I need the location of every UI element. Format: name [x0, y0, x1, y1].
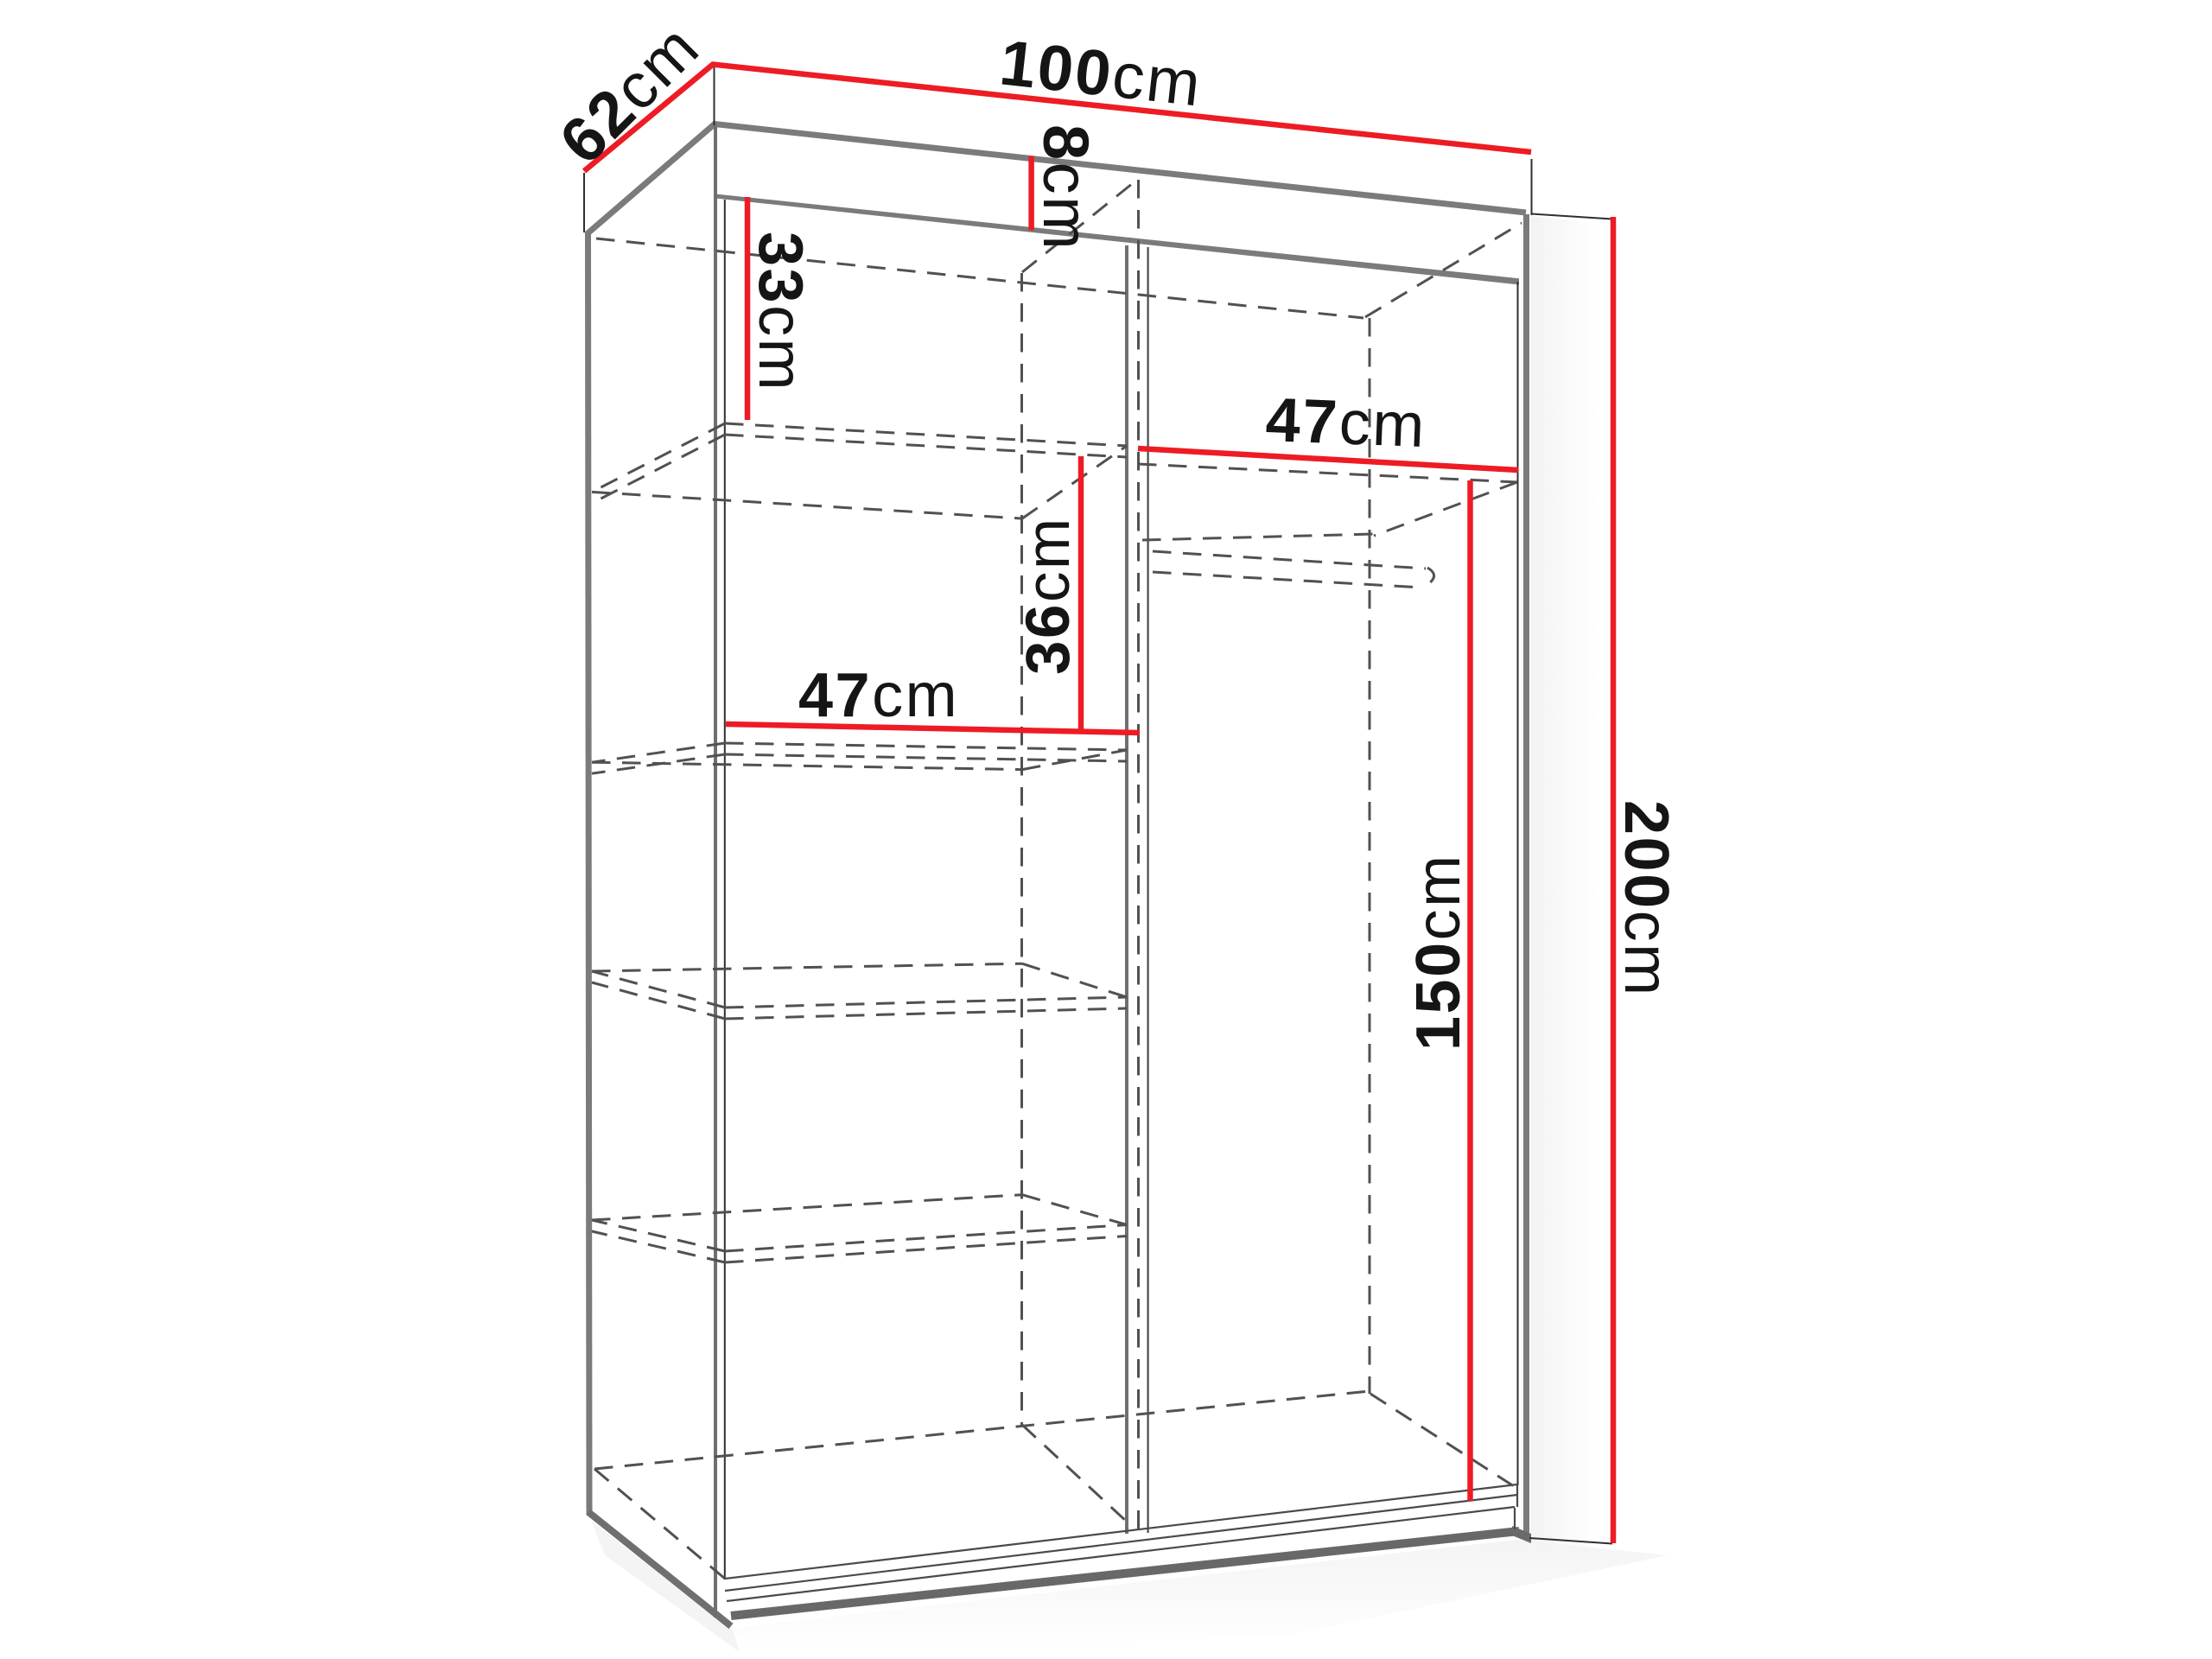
- svg-text:47cm: 47cm: [1264, 385, 1427, 461]
- svg-text:150cm: 150cm: [1404, 853, 1473, 1051]
- svg-text:36cm: 36cm: [1014, 516, 1083, 675]
- svg-text:200cm: 200cm: [1611, 800, 1681, 998]
- svg-text:8cm: 8cm: [1030, 124, 1102, 251]
- svg-text:33cm: 33cm: [746, 232, 815, 392]
- svg-text:47cm: 47cm: [798, 661, 959, 730]
